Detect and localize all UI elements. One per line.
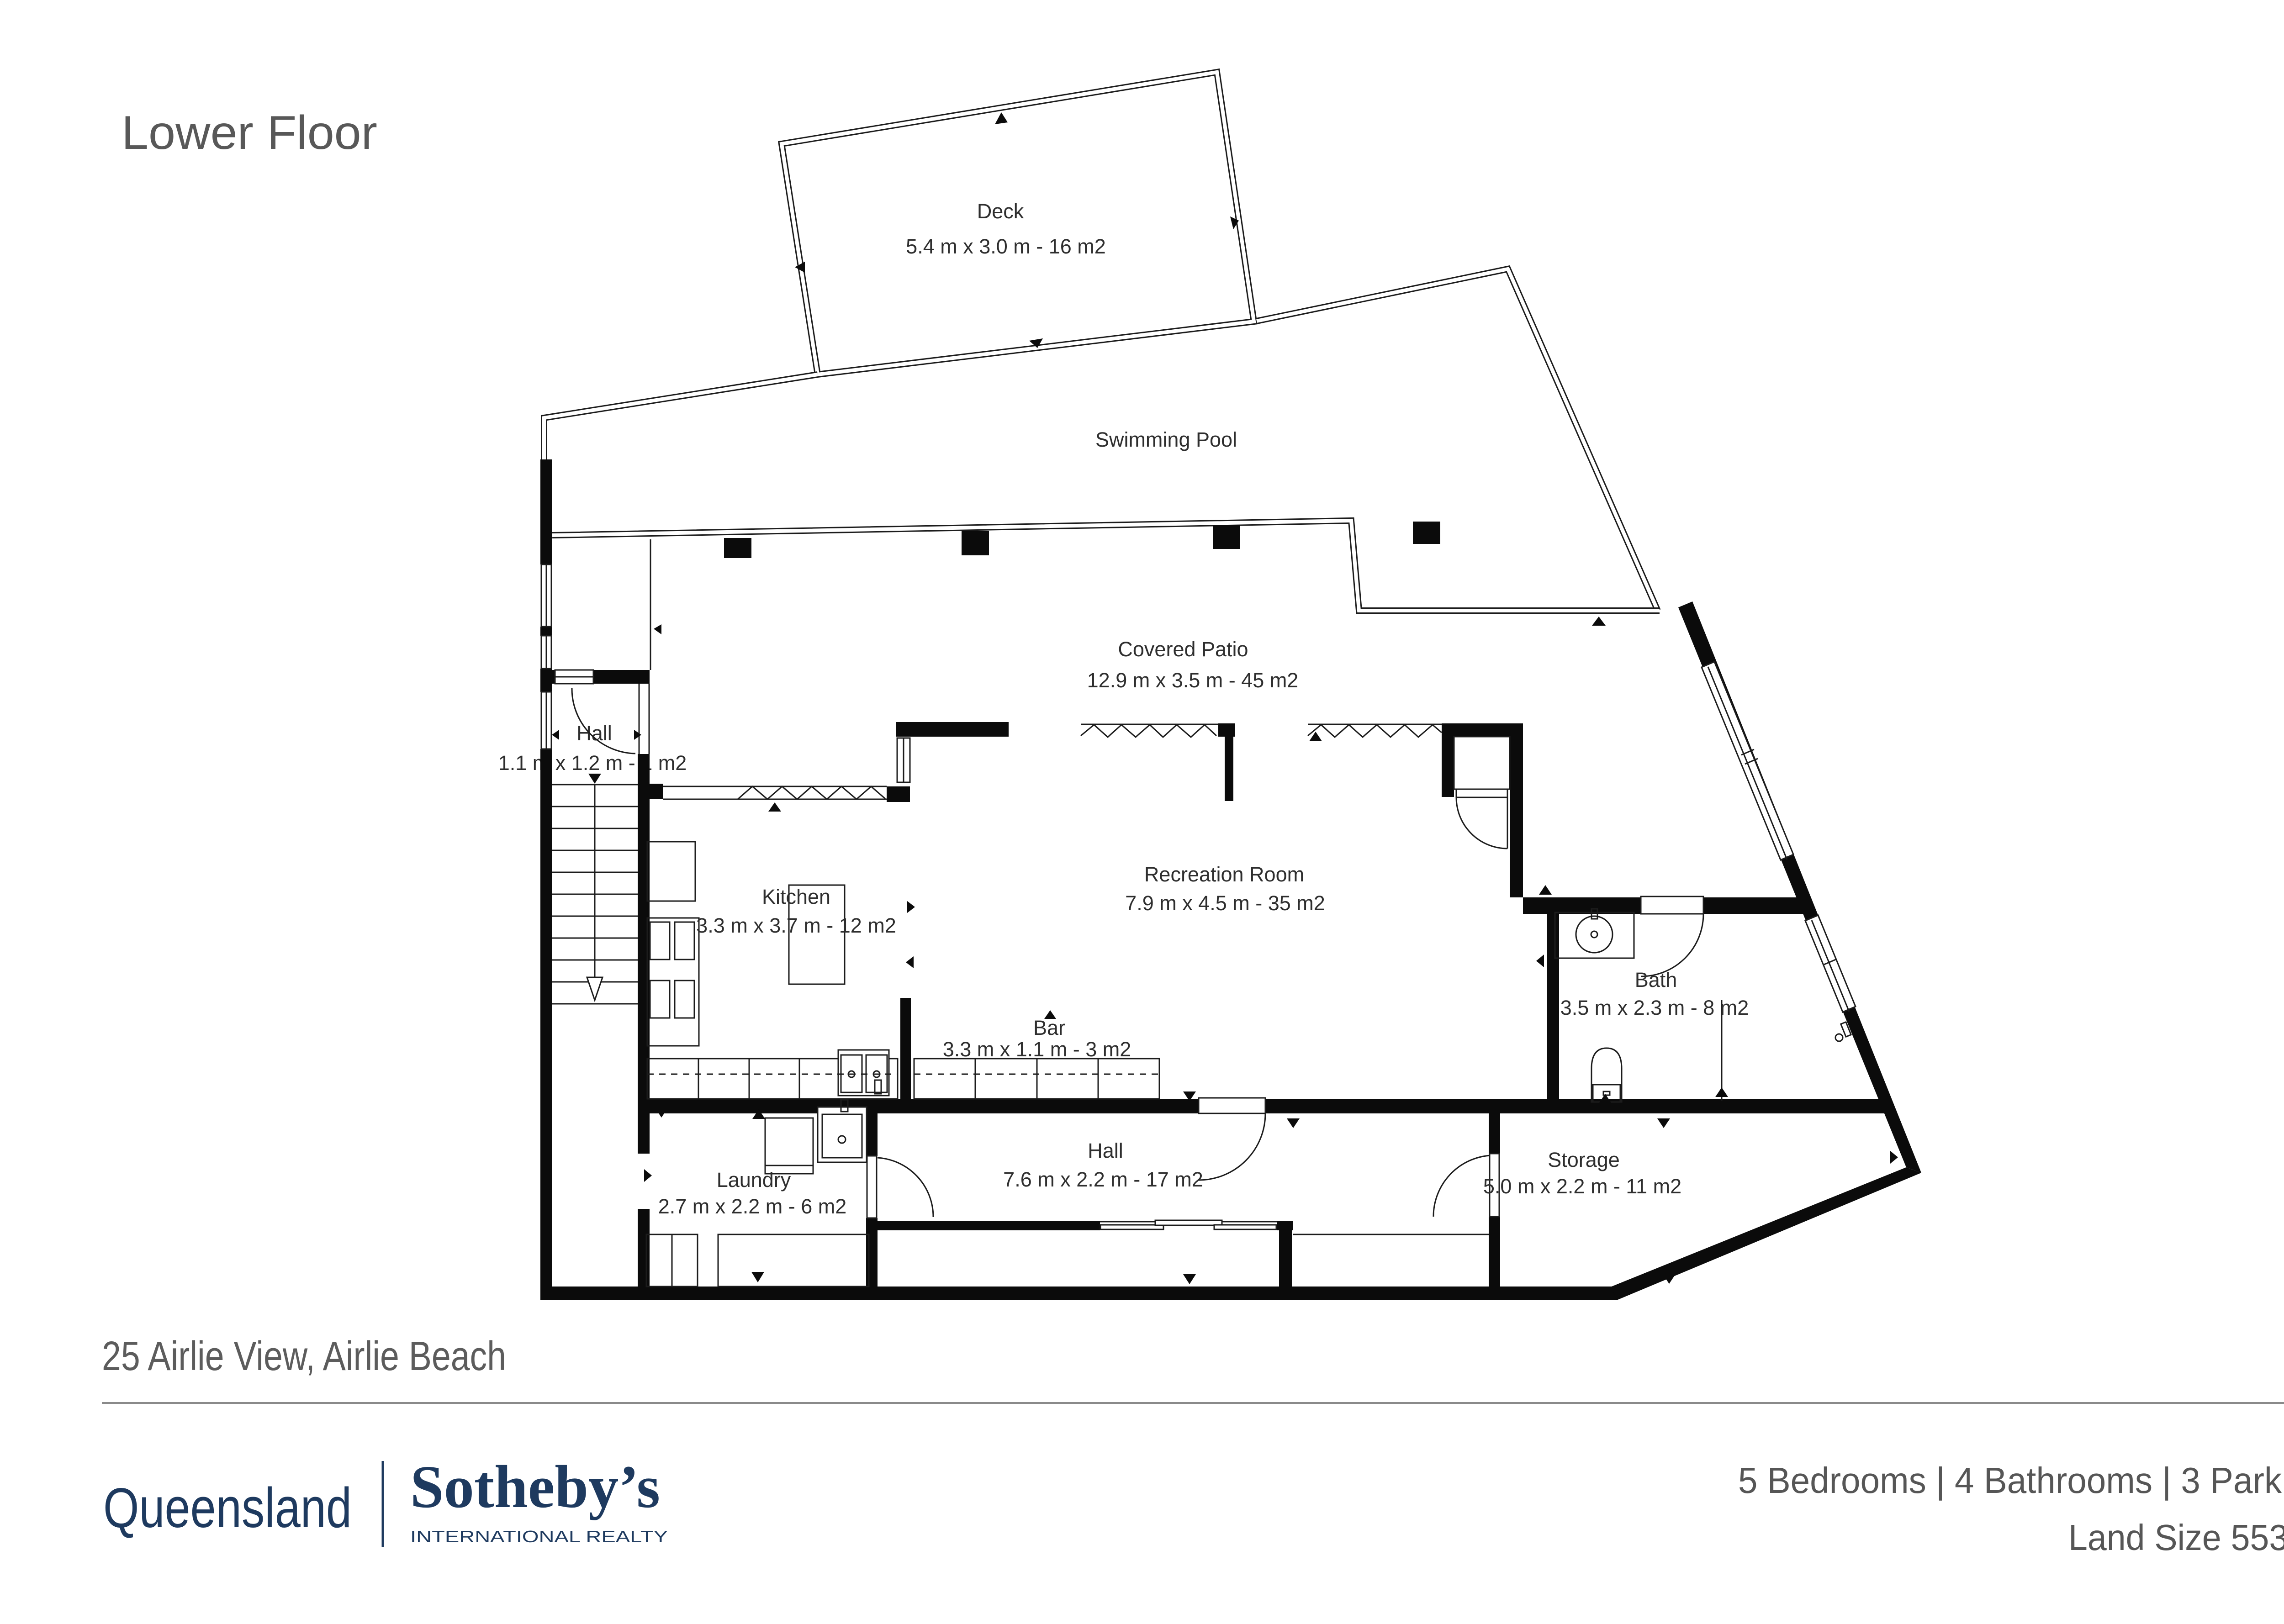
svg-text:Lower Floor: Lower Floor — [122, 106, 377, 159]
svg-text:Storage: Storage — [1548, 1148, 1620, 1171]
svg-text:3.3 m x 1.1 m - 3 m2: 3.3 m x 1.1 m - 3 m2 — [943, 1038, 1131, 1061]
svg-text:Recreation Room: Recreation Room — [1144, 863, 1304, 886]
svg-text:Covered Patio: Covered Patio — [1118, 638, 1248, 661]
svg-text:Hall: Hall — [1088, 1139, 1123, 1162]
svg-text:25 Airlie View, Airlie Beach: 25 Airlie View, Airlie Beach — [102, 1334, 506, 1379]
svg-text:2.7 m x 2.2 m - 6 m2: 2.7 m x 2.2 m - 6 m2 — [658, 1195, 847, 1218]
svg-text:3.3 m x 3.7 m - 12 m2: 3.3 m x 3.7 m - 12 m2 — [696, 914, 896, 937]
svg-text:5.0 m x 2.2 m - 11 m2: 5.0 m x 2.2 m - 11 m2 — [1483, 1175, 1681, 1198]
svg-text:Queensland: Queensland — [103, 1477, 352, 1540]
svg-text:5.4 m x 3.0 m - 16 m2: 5.4 m x 3.0 m - 16 m2 — [906, 235, 1106, 258]
svg-text:3.5 m x 2.3 m - 8 m2: 3.5 m x 2.3 m - 8 m2 — [1560, 996, 1749, 1019]
svg-text:Sotheby’s: Sotheby’s — [410, 1453, 660, 1520]
svg-text:Bath: Bath — [1635, 968, 1677, 991]
svg-text:Hall: Hall — [576, 722, 612, 745]
svg-text:5 Bedrooms | 4 Bathrooms | 3 P: 5 Bedrooms | 4 Bathrooms | 3 Parking — [1738, 1460, 2284, 1501]
svg-text:Bar: Bar — [1033, 1016, 1065, 1039]
svg-text:12.9 m x 3.5 m - 45 m2: 12.9 m x 3.5 m - 45 m2 — [1087, 669, 1299, 692]
svg-text:7.9 m x 4.5 m - 35 m2: 7.9 m x 4.5 m - 35 m2 — [1125, 891, 1325, 915]
svg-text:Land Size 553m²: Land Size 553m² — [2068, 1517, 2284, 1558]
svg-text:Kitchen: Kitchen — [762, 885, 830, 908]
svg-text:Laundry: Laundry — [717, 1168, 791, 1192]
svg-text:Deck: Deck — [977, 200, 1024, 223]
svg-text:1.1 m x 1.2 m - 1 m2: 1.1 m x 1.2 m - 1 m2 — [498, 751, 687, 775]
svg-text:Swimming Pool: Swimming Pool — [1095, 428, 1237, 451]
svg-text:7.6 m x 2.2 m - 17 m2: 7.6 m x 2.2 m - 17 m2 — [1003, 1168, 1203, 1191]
svg-text:INTERNATIONAL REALTY: INTERNATIONAL REALTY — [410, 1527, 668, 1546]
